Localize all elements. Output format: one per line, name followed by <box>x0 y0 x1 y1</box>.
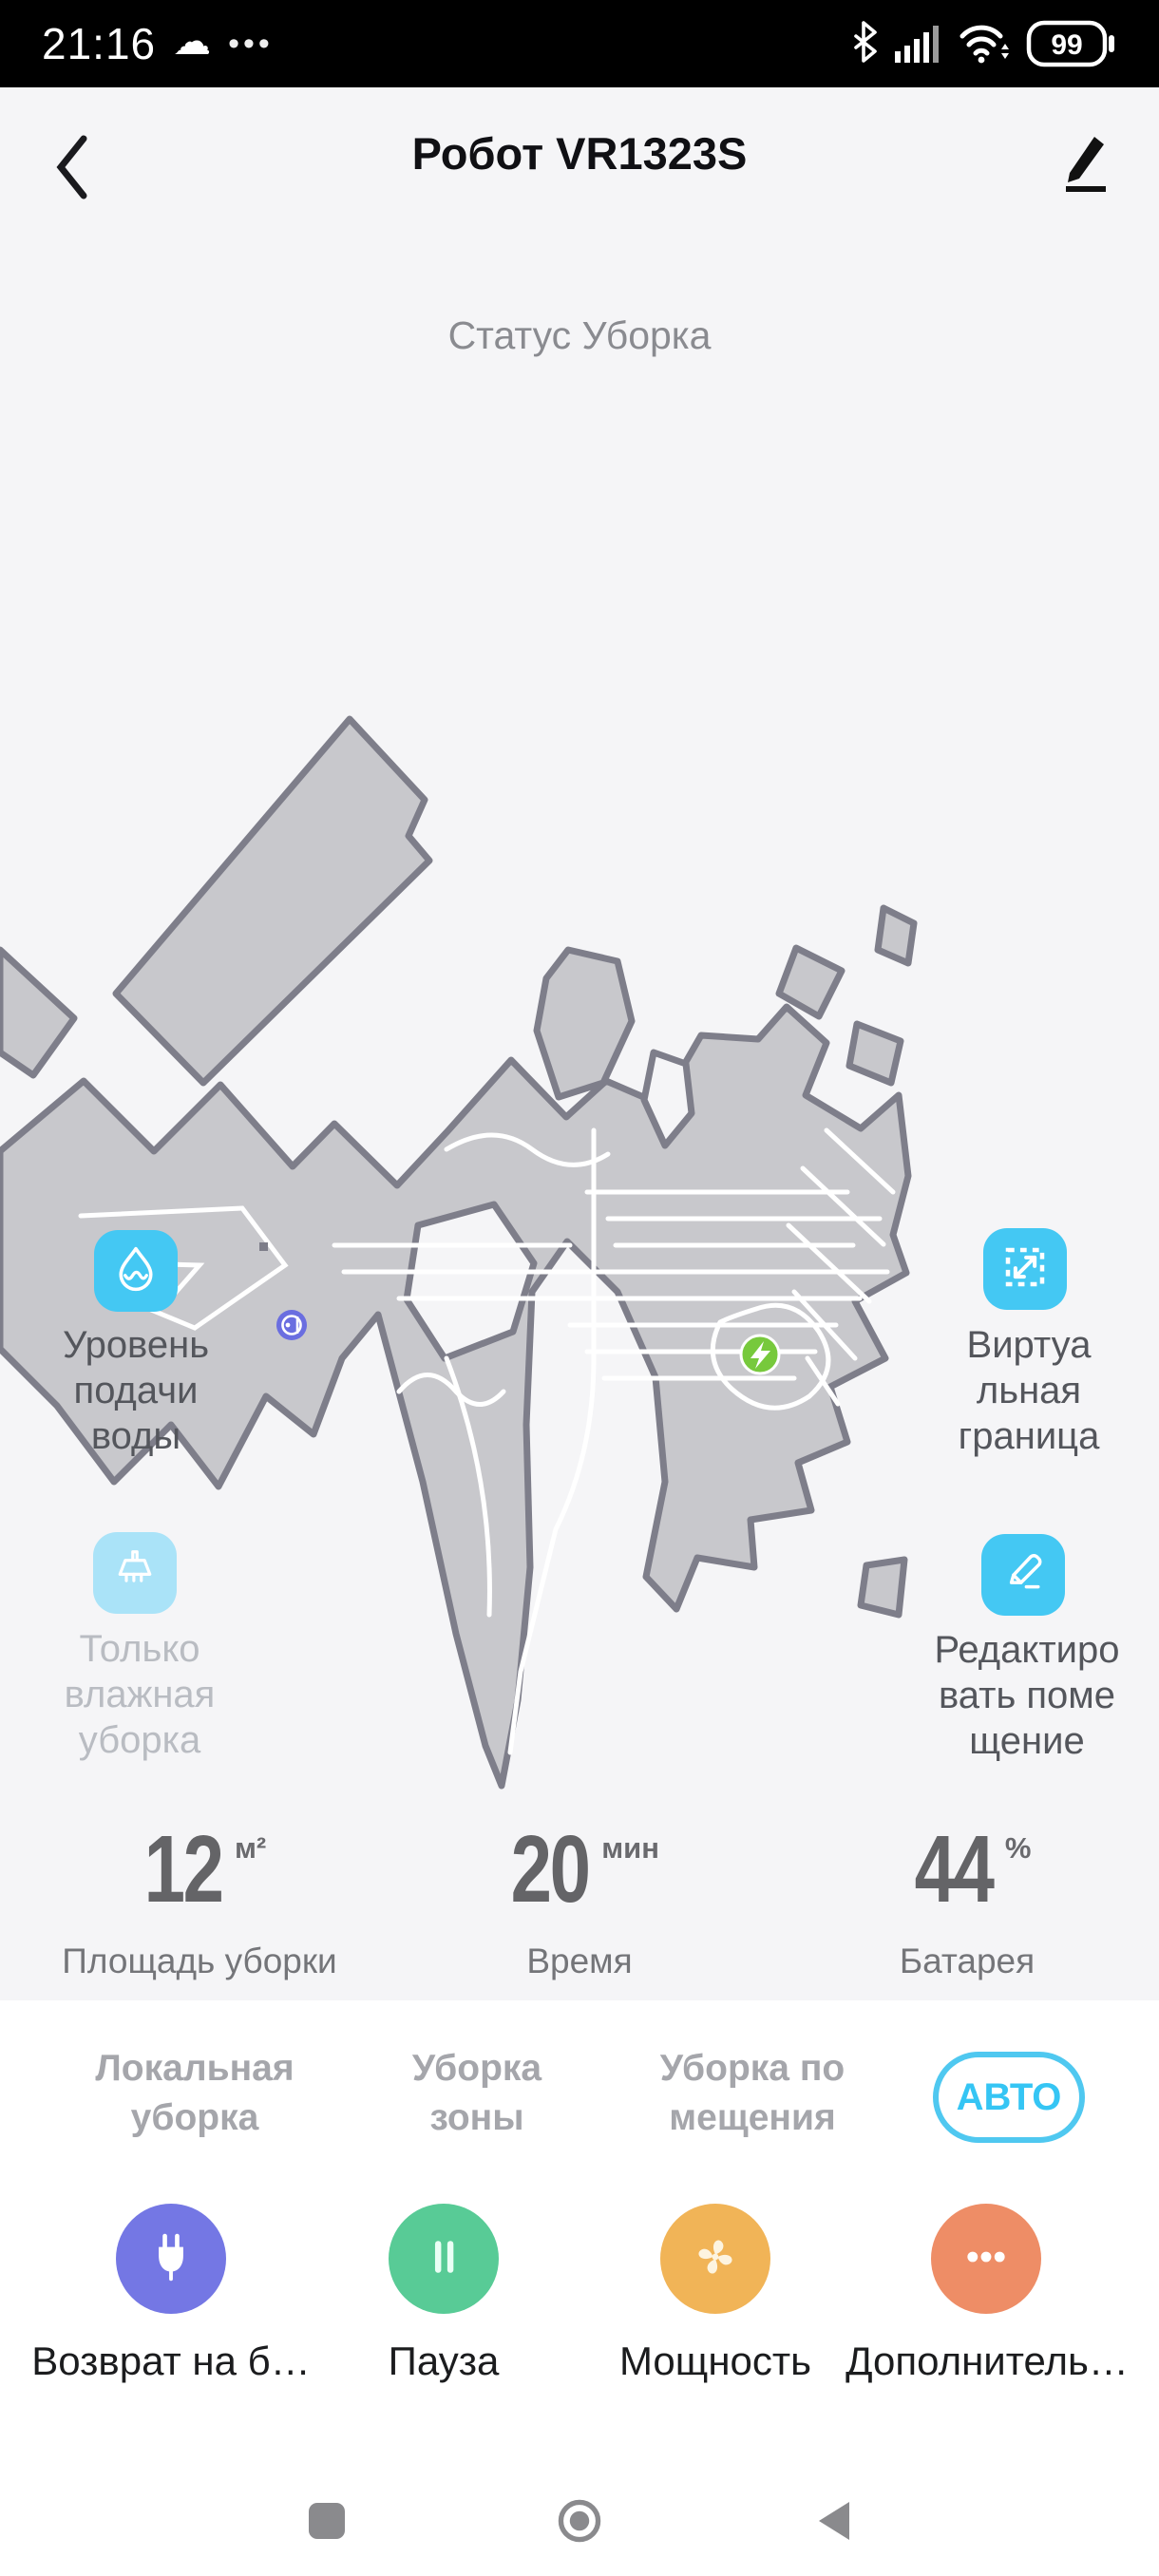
time-value: 20 <box>511 1826 589 1913</box>
area-label: Площадь уборки <box>52 1941 347 1981</box>
clock: 21:16 <box>42 18 156 69</box>
pause-label: Пауза <box>311 2339 577 2384</box>
map-fragment <box>537 950 632 1097</box>
wet-only-button[interactable] <box>93 1532 177 1614</box>
battery-icon: 99 <box>1026 17 1117 70</box>
tab-room-cleaning[interactable]: Уборка по мещения <box>629 2044 876 2143</box>
wifi-icon <box>958 19 1013 69</box>
fan-icon <box>686 2227 745 2291</box>
virtual-boundary-button[interactable] <box>983 1228 1067 1310</box>
virtual-boundary-label: Виртуа льная граница <box>910 1322 1148 1459</box>
tab-local-cleaning[interactable]: Локальная уборка <box>71 2044 318 2143</box>
more-options-label: Дополнитель… <box>834 2339 1140 2384</box>
edit-room-label: Редактиро вать поме щение <box>908 1627 1146 1764</box>
pause-button[interactable] <box>389 2204 499 2314</box>
bluetooth-icon <box>849 17 882 71</box>
nav-back-button[interactable] <box>809 2498 855 2544</box>
water-drop-icon <box>110 1243 161 1299</box>
suction-power-label: Мощность <box>582 2339 848 2384</box>
return-to-base-button[interactable] <box>116 2204 226 2314</box>
header: Робот VR1323S <box>0 87 1159 249</box>
mop-brush-icon <box>109 1545 161 1601</box>
pause-icon <box>414 2227 473 2291</box>
water-level-label: Уровень подачи воды <box>17 1322 255 1459</box>
battery-label: Батарея <box>820 1941 1114 1981</box>
more-dots-icon <box>957 2227 1016 2291</box>
time-label: Время <box>432 1941 727 1981</box>
page-title: Робот VR1323S <box>0 127 1159 180</box>
water-level-button[interactable] <box>94 1230 178 1312</box>
charging-dock-marker <box>741 1335 779 1373</box>
signal-bars-icon <box>895 21 944 67</box>
app-screen: 21:16 ☁ ••• <box>0 0 1159 2576</box>
stat-battery: 44% Батарея <box>820 1826 1114 1981</box>
stat-area: 12м² Площадь уборки <box>52 1826 347 1981</box>
map-fragment <box>0 950 74 1075</box>
suction-power-button[interactable] <box>660 2204 770 2314</box>
battery-unit: % <box>1005 1831 1032 1866</box>
area-value: 12 <box>143 1826 221 1913</box>
weather-cloud-icon: ☁ <box>173 23 211 61</box>
map-fragment <box>861 1560 904 1615</box>
edit-room-pencil-icon <box>997 1547 1049 1603</box>
map-room-band <box>116 719 429 1083</box>
robot-position-marker <box>276 1310 307 1340</box>
home-button[interactable] <box>557 2498 602 2544</box>
edit-room-button[interactable] <box>981 1534 1065 1616</box>
map-fragment <box>878 908 914 963</box>
rename-pencil-icon[interactable] <box>1053 129 1111 196</box>
recents-button[interactable] <box>304 2498 350 2544</box>
more-options-button[interactable] <box>931 2204 1041 2314</box>
virtual-boundary-icon <box>999 1241 1051 1297</box>
android-navbar <box>0 2466 1159 2576</box>
stat-time: 20мин Время <box>432 1826 727 1981</box>
status-bar: 21:16 ☁ ••• <box>0 0 1159 87</box>
battery-value: 44 <box>914 1826 992 1913</box>
area-unit: м² <box>235 1831 266 1866</box>
return-to-base-label: Возврат на б… <box>19 2339 323 2384</box>
notification-dots-icon: ••• <box>228 26 274 63</box>
tab-zone-cleaning[interactable]: Уборка зоны <box>353 2044 600 2143</box>
map-fragment <box>849 1024 901 1083</box>
battery-percent-text: 99 <box>1051 29 1082 61</box>
plug-icon <box>142 2227 200 2291</box>
time-unit: мин <box>601 1831 659 1866</box>
wet-only-label: Только влажная уборка <box>21 1626 258 1763</box>
cleaning-status-text: Статус Уборка <box>0 313 1159 358</box>
map-debris-dot <box>259 1242 268 1251</box>
tab-auto-active[interactable]: АВТО <box>933 2052 1085 2143</box>
